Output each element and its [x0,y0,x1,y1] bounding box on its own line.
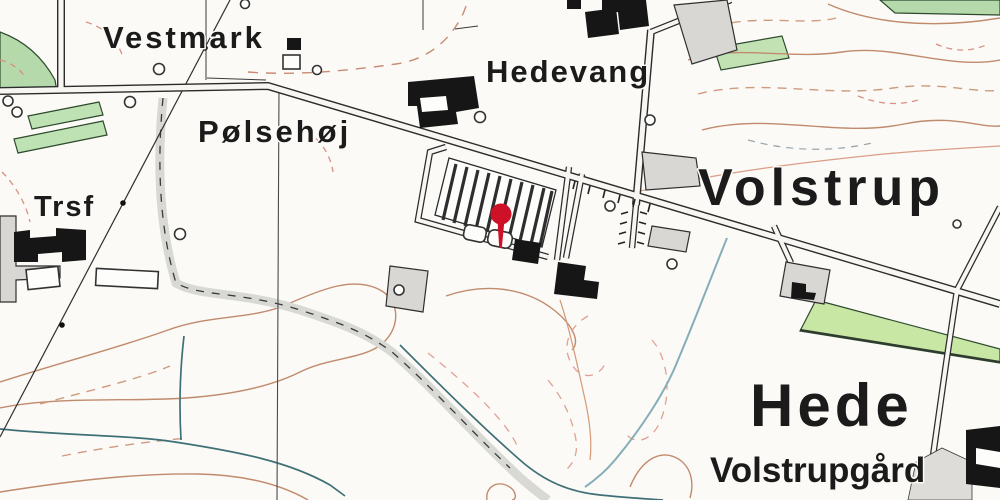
building [512,239,541,264]
label-trsf: Trsf [34,191,95,223]
building [648,226,690,252]
stream [400,345,663,500]
stream [585,238,727,487]
farmyard [642,152,700,190]
map-canvas[interactable]: Vestmark Hedevang Pølsehøj Trsf Volstrup… [0,0,1000,500]
stream [0,429,345,496]
label-polsehoj: Pølsehøj [198,114,351,149]
shelterbelt [800,300,1000,363]
building [287,38,301,50]
label-vestmark: Vestmark [103,20,265,55]
trsf-building [14,228,86,262]
contour-blue-dash [748,140,876,149]
farmyard [386,266,428,312]
building [554,262,599,299]
greenhouse [14,121,107,153]
building [26,266,60,289]
label-volstrupgard: Volstrupgård [710,451,925,490]
stream-ditch [180,336,184,440]
building [283,55,300,69]
label-hedevang: Hedevang [486,54,650,89]
field-boundaries [206,0,478,500]
building [96,268,159,288]
label-hede: Hede [750,372,913,439]
building [420,96,448,112]
pin-head[interactable] [491,204,512,225]
grove-area [0,32,57,92]
building [567,0,581,9]
field-track [160,98,548,500]
plantation-patch [880,0,1000,15]
label-volstrup: Volstrup [698,159,945,217]
tracks [160,98,548,500]
